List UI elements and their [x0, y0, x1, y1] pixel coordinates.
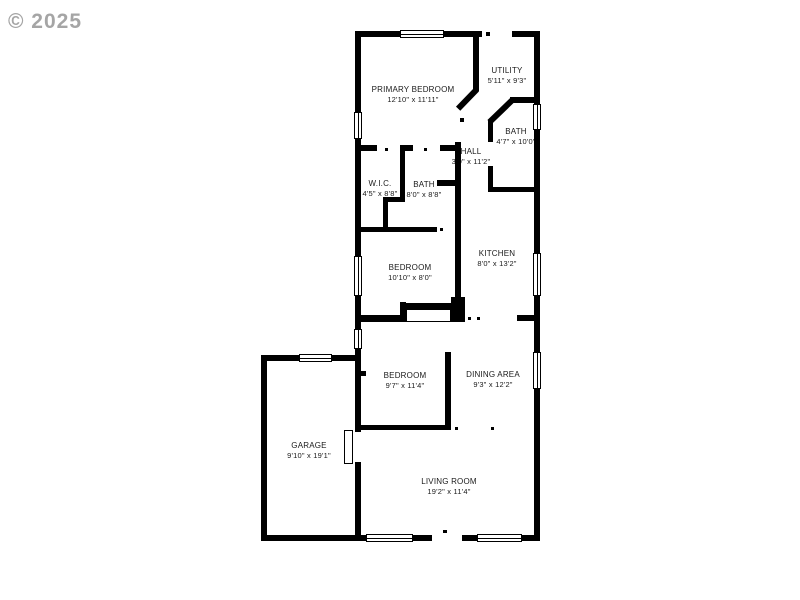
wic-top-wall-a	[355, 145, 377, 151]
window-living-bottom-left	[366, 534, 413, 542]
room-dimensions: 19'2" x 11'4"	[427, 487, 470, 497]
room-name: DINING AREA	[466, 370, 520, 380]
bedroom1-bottom-wall-left	[355, 315, 400, 322]
kitchen-left-wall	[455, 186, 461, 297]
house-left-wall-lower	[355, 462, 361, 541]
window-bath-right	[533, 104, 541, 130]
wic-top-wall-c	[440, 145, 461, 151]
opening-tick	[455, 427, 458, 430]
opening-tick	[468, 317, 471, 320]
door-tick	[460, 118, 464, 122]
room-label-garage: GARAGE 9'10" x 19'1"	[287, 441, 331, 461]
chase-block	[451, 297, 465, 322]
window-primary-bedroom-left	[354, 112, 362, 139]
room-dimensions: 8'0" x 8'8"	[407, 190, 442, 200]
room-label-living-room: LIVING ROOM 19'2" x 11'4"	[421, 477, 477, 497]
room-name: KITCHEN	[479, 249, 516, 259]
utility-left-wall	[473, 37, 479, 91]
wall-nub	[360, 371, 366, 376]
room-dimensions: 9'10" x 19'1"	[287, 451, 331, 461]
floorplan-canvas: © 2025	[0, 0, 800, 600]
window-garage-top	[299, 354, 332, 362]
room-name: GARAGE	[291, 441, 326, 451]
copyright-watermark: © 2025	[8, 10, 82, 34]
room-name: BATH	[413, 180, 435, 190]
room-name: PRIMARY BEDROOM	[372, 85, 455, 95]
room-name: UTILITY	[491, 66, 522, 76]
bath1-bottom-wall	[488, 187, 540, 192]
room-dimensions: 4'7" x 10'0"	[496, 137, 535, 147]
door-tick	[385, 148, 388, 151]
room-name: BEDROOM	[389, 263, 432, 273]
room-dimensions: 9'7" x 11'4"	[386, 381, 425, 391]
bath1-left-wall-upper	[488, 120, 493, 142]
window-primary-bedroom-top	[400, 30, 444, 38]
opening-tick	[491, 427, 494, 430]
room-dimensions: 5'11" x 9'3"	[488, 76, 527, 86]
bedroom1-bottom-wall-upper	[406, 303, 451, 309]
garage-door-leaf	[344, 430, 353, 464]
room-name: HALL	[461, 147, 482, 157]
bedroom2-bottom-wall	[355, 425, 451, 430]
window-dining-right	[533, 352, 541, 389]
room-label-dining-area: DINING AREA 9'3" x 12'2"	[466, 370, 520, 390]
diagonal-wall-bedroom-hall	[456, 87, 479, 111]
opening-tick	[477, 317, 480, 320]
bedroom2-closet-outline	[406, 309, 451, 322]
room-label-utility: UTILITY 5'11" x 9'3"	[488, 66, 527, 86]
door-tick	[440, 228, 443, 231]
garage-left-wall	[261, 355, 267, 541]
room-label-bedroom-middle: BEDROOM 10'10" x 8'0"	[388, 263, 432, 283]
room-label-kitchen: KITCHEN 8'0" x 13'2"	[477, 249, 516, 269]
room-dimensions: 10'10" x 8'0"	[388, 273, 432, 283]
room-name: W.I.C.	[369, 179, 392, 189]
window-living-bottom-right	[477, 534, 522, 542]
room-name: BEDROOM	[384, 371, 427, 381]
bedroom2-right-wall	[445, 352, 451, 430]
window-kitchen-right	[533, 253, 541, 296]
room-name: BATH	[505, 127, 527, 137]
door-tick	[486, 32, 490, 36]
room-label-primary-bedroom: PRIMARY BEDROOM 12'10" x 11'11"	[372, 85, 455, 105]
wic-bath-divider-wall	[400, 150, 405, 202]
room-label-bath-upper: BATH 4'7" x 10'0"	[496, 127, 535, 147]
room-name: LIVING ROOM	[421, 477, 477, 487]
room-dimensions: 9'3" x 12'2"	[473, 380, 512, 390]
window-bedroom2-left	[354, 329, 362, 349]
room-dimensions: 12'10" x 11'11"	[387, 95, 438, 105]
window-bedroom1-left	[354, 256, 362, 296]
utility-bath-wall	[510, 97, 540, 103]
door-tick	[443, 530, 447, 533]
door-tick	[424, 148, 427, 151]
room-label-bedroom-lower: BEDROOM 9'7" x 11'4"	[384, 371, 427, 391]
kitchen-dining-wall	[517, 315, 540, 321]
bedroom1-top-wall	[355, 227, 437, 232]
room-dimensions: 8'0" x 13'2"	[477, 259, 516, 269]
